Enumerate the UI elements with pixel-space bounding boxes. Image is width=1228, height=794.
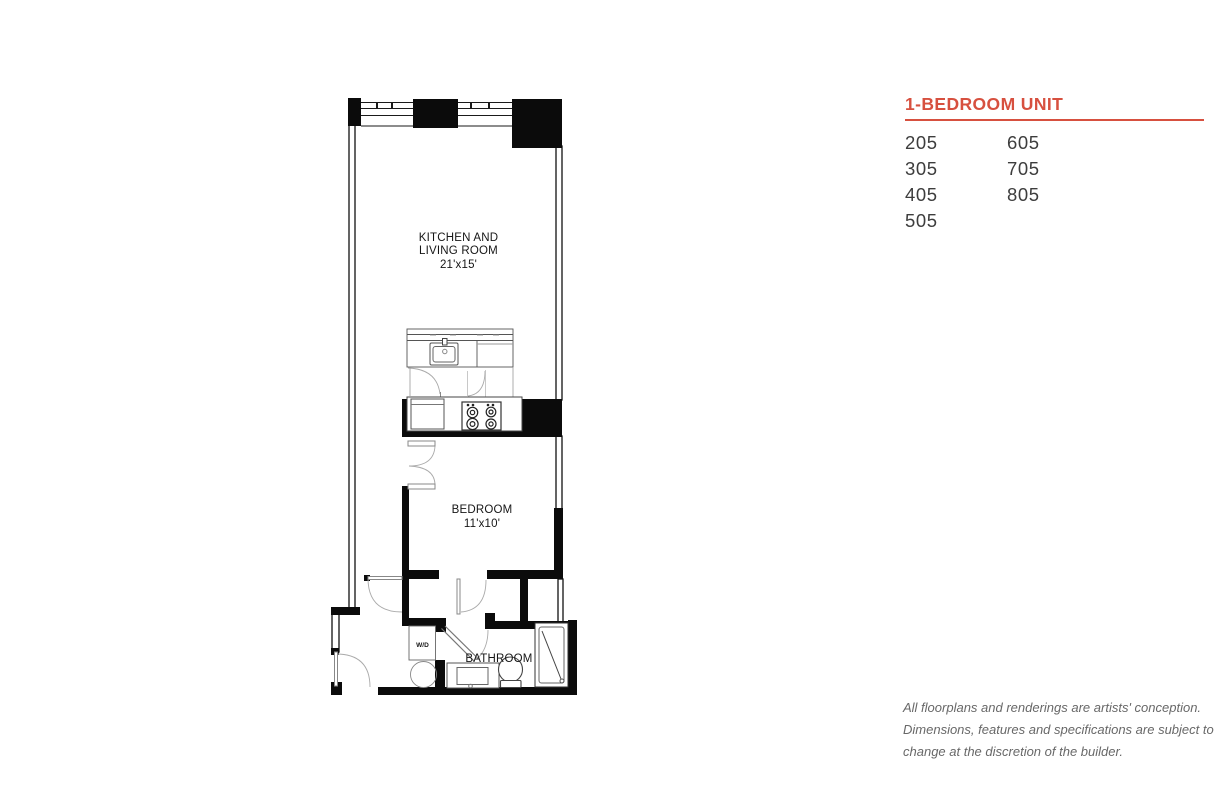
- unit-number-column-1: 205 305 405 505: [905, 130, 1007, 234]
- vanity-sink: [447, 663, 499, 688]
- faucet: [443, 339, 448, 346]
- cabinet: [411, 399, 444, 429]
- disclaimer-line: change at the discretion of the builder.: [903, 741, 1223, 763]
- entry-door-leaf: [335, 652, 338, 686]
- bedroom-label: BEDROOM: [452, 504, 513, 516]
- washer-dryer: [409, 626, 437, 688]
- unit-number: 305: [905, 156, 1007, 182]
- unit-number: 705: [1007, 156, 1109, 182]
- bedroom-door-arc: [461, 580, 486, 612]
- unit-number: 605: [1007, 130, 1109, 156]
- disclaimer-line: Dimensions, features and specifications …: [903, 719, 1223, 741]
- bedroom-dimensions: 11'x10': [464, 518, 500, 530]
- disclaimer-text: All floorplans and renderings are artist…: [903, 697, 1223, 763]
- unit-number: 805: [1007, 182, 1109, 208]
- unit-number-list: 205 305 405 505 605 705 805: [905, 130, 1205, 234]
- disclaimer-line: All floorplans and renderings are artist…: [903, 697, 1223, 719]
- bathroom-label: BATHROOM: [465, 653, 532, 665]
- kitchen-counter: [407, 329, 513, 397]
- washer-dryer-label: W/D: [416, 642, 429, 649]
- unit-number: 505: [905, 208, 1007, 234]
- bedroom-door-leaf: [457, 579, 460, 614]
- unit-info-panel: 1-BEDROOM UNIT 205 305 405 505 605 705 8…: [905, 94, 1205, 234]
- page-title: 1-BEDROOM UNIT: [905, 94, 1205, 114]
- kitchen-living-label-line2: LIVING ROOM: [419, 245, 498, 257]
- title-divider: [905, 119, 1204, 121]
- hall-door-leaf: [368, 577, 402, 580]
- kitchen-living-dimensions: 21'x15': [440, 259, 477, 271]
- closet-door-leaf-top: [408, 441, 435, 446]
- unit-number: 205: [905, 130, 1007, 156]
- kitchen-door-arc2: [468, 371, 485, 396]
- hall-door-arc: [368, 578, 402, 612]
- kitchen-living-label-line1: KITCHEN AND: [419, 232, 499, 244]
- unit-number-column-2: 605 705 805: [1007, 130, 1109, 234]
- closet-door-leaf-bottom: [408, 484, 435, 489]
- kitchen-door-arc: [408, 368, 440, 394]
- brochure-page: { "panel": { "title": "1-BEDROOM UNIT", …: [0, 0, 1228, 794]
- closet-door-arc-bottom: [409, 466, 435, 484]
- shower: [535, 623, 568, 687]
- unit-number: 405: [905, 182, 1007, 208]
- closet-door-arc-top: [409, 446, 435, 466]
- stove: [462, 402, 501, 430]
